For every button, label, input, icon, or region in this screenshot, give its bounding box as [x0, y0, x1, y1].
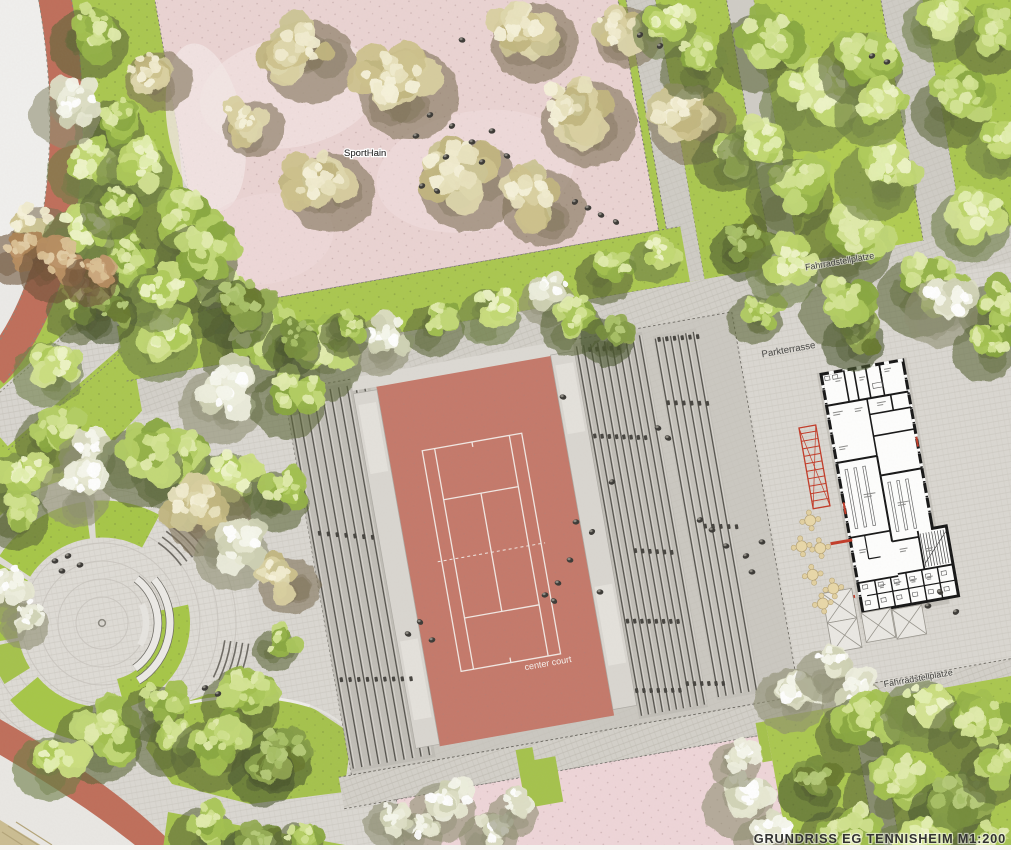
- svg-text:SportHain: SportHain: [344, 148, 386, 159]
- svg-text:GRUNDRISS EG TENNISHEIM M1:200: GRUNDRISS EG TENNISHEIM M1:200: [754, 831, 1006, 846]
